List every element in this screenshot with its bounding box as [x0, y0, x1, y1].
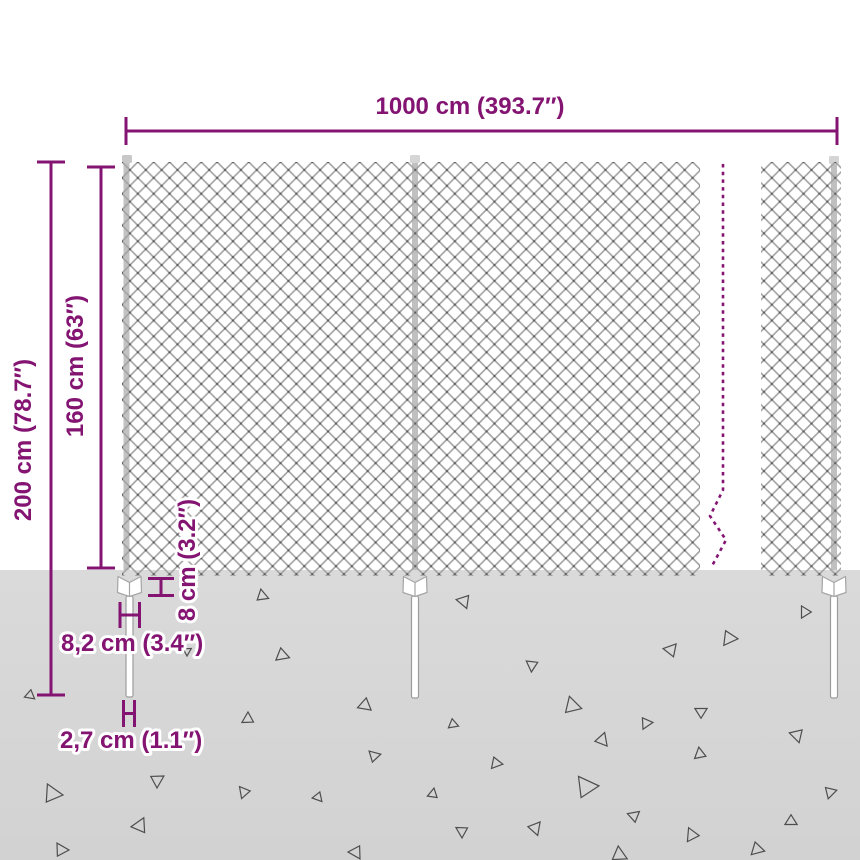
svg-text:8,2 cm (3.4″): 8,2 cm (3.4″) — [61, 630, 203, 657]
svg-text:2,7 cm (1.1″): 2,7 cm (1.1″) — [60, 727, 202, 754]
svg-text:8 cm (3.2″): 8 cm (3.2″) — [174, 499, 201, 621]
svg-text:1000 cm (393.7″): 1000 cm (393.7″) — [376, 93, 565, 120]
svg-text:160 cm (63″): 160 cm (63″) — [62, 295, 89, 437]
svg-text:200 cm (78.7″): 200 cm (78.7″) — [10, 359, 37, 521]
